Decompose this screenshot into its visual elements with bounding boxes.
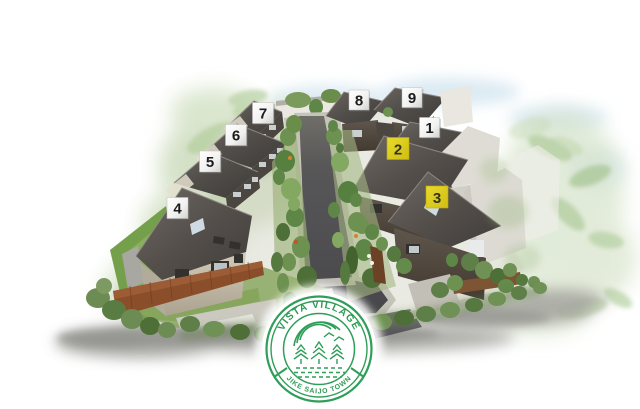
svg-text:1: 1 [425,120,433,137]
svg-text:6: 6 [232,128,240,145]
svg-text:8: 8 [355,93,363,110]
svg-text:5: 5 [206,154,214,171]
svg-text:4: 4 [173,201,182,218]
svg-text:3: 3 [433,190,441,207]
svg-text:7: 7 [259,106,267,123]
svg-text:9: 9 [408,90,416,107]
svg-text:2: 2 [394,142,402,159]
